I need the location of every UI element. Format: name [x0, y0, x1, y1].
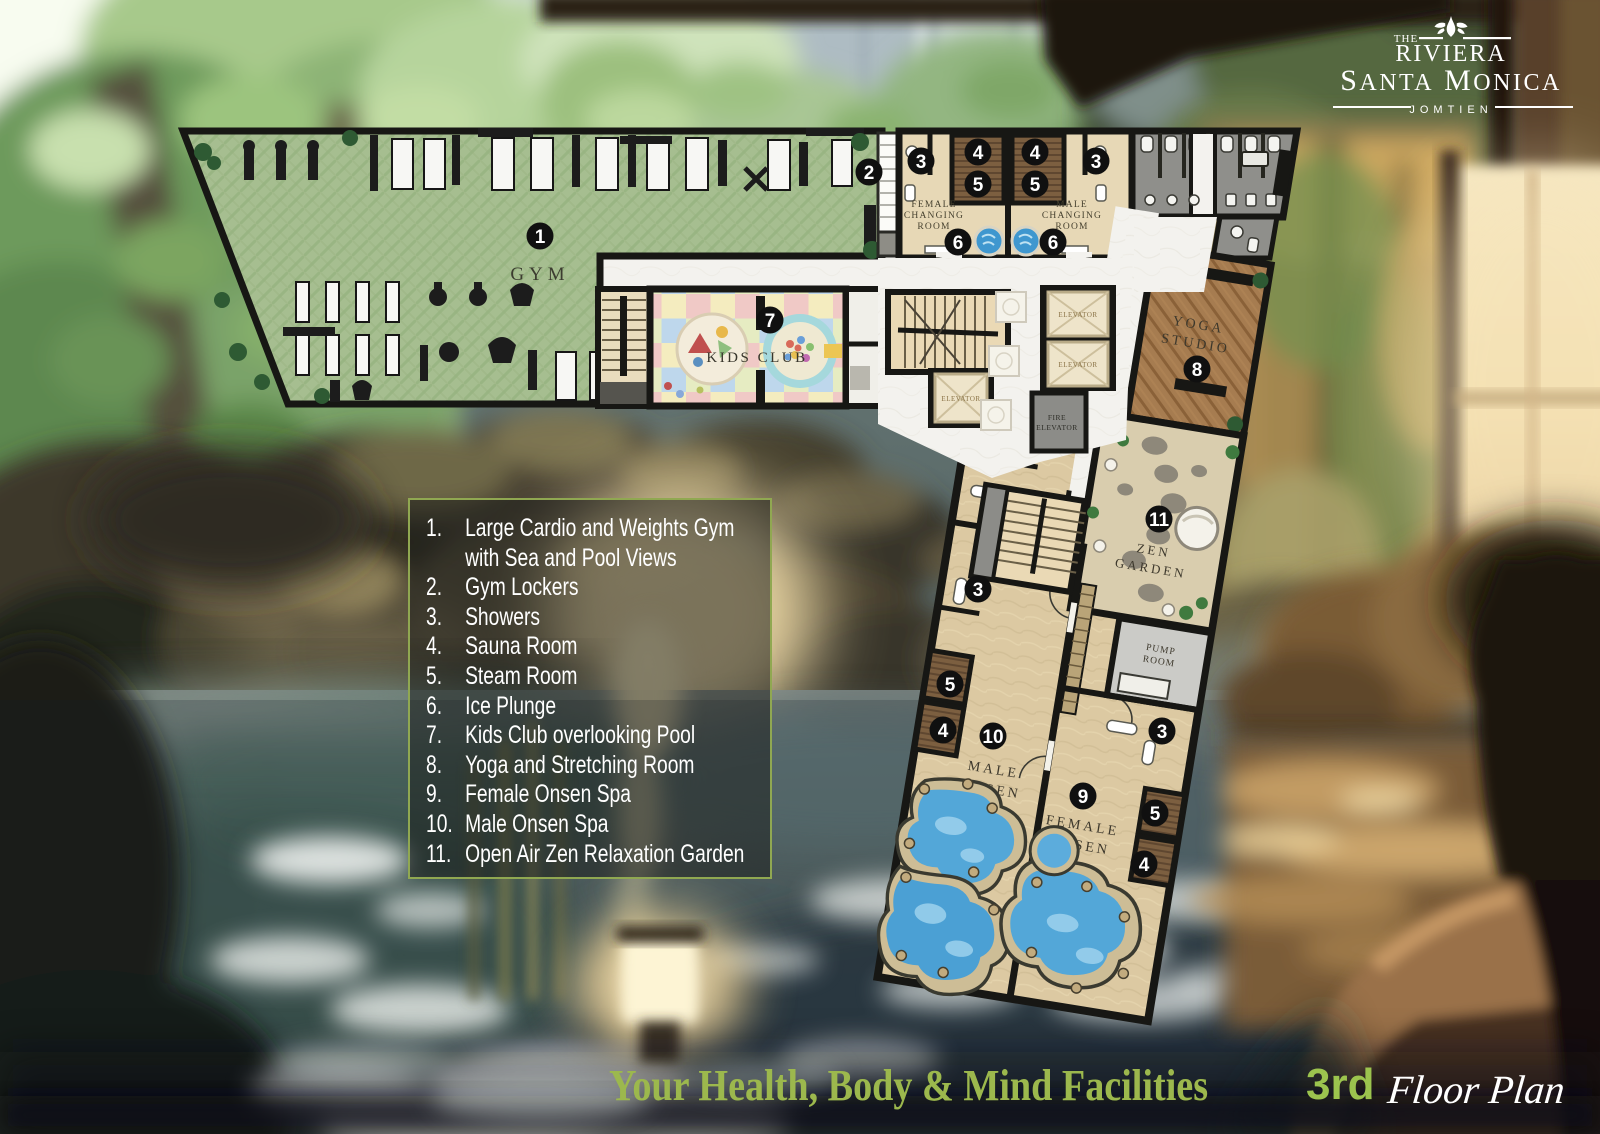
- svg-text:4: 4: [1139, 855, 1150, 876]
- svg-text:FIRE: FIRE: [1048, 413, 1066, 422]
- svg-text:2: 2: [864, 163, 875, 184]
- svg-text:CHANGING: CHANGING: [904, 211, 964, 221]
- svg-text:3: 3: [1157, 722, 1168, 743]
- svg-text:4: 4: [973, 143, 984, 164]
- svg-text:7: 7: [765, 311, 776, 332]
- svg-text:ROOM: ROOM: [1055, 222, 1088, 232]
- svg-text:5: 5: [973, 175, 984, 196]
- svg-text:ELEVATOR: ELEVATOR: [941, 395, 980, 403]
- svg-text:ELEVATOR: ELEVATOR: [1058, 361, 1097, 369]
- svg-text:5: 5: [1150, 804, 1161, 825]
- svg-text:3: 3: [973, 580, 984, 601]
- svg-text:ELEVATOR: ELEVATOR: [1036, 423, 1078, 432]
- svg-text:JOMTIEN: JOMTIEN: [1409, 104, 1492, 114]
- svg-text:4: 4: [1030, 143, 1041, 164]
- svg-text:SANTA MONICA: SANTA MONICA: [1340, 64, 1562, 97]
- svg-text:6: 6: [953, 233, 964, 254]
- svg-text:9: 9: [1078, 787, 1089, 808]
- svg-text:4: 4: [938, 721, 949, 742]
- svg-text:CHANGING: CHANGING: [1042, 211, 1102, 221]
- svg-text:KIDS CLUB: KIDS CLUB: [706, 350, 807, 366]
- svg-text:GYM: GYM: [510, 264, 569, 285]
- svg-text:5: 5: [1030, 175, 1041, 196]
- svg-text:11: 11: [1149, 510, 1170, 531]
- svg-text:5: 5: [945, 675, 956, 696]
- svg-text:10: 10: [982, 727, 1003, 748]
- svg-text:3: 3: [916, 152, 927, 173]
- svg-text:6: 6: [1048, 233, 1059, 254]
- svg-text:MALE: MALE: [1056, 200, 1088, 210]
- svg-text:3: 3: [1091, 152, 1102, 173]
- svg-text:8: 8: [1192, 360, 1203, 381]
- svg-text:1: 1: [535, 227, 546, 248]
- svg-text:FEMALE: FEMALE: [911, 200, 956, 210]
- svg-text:ROOM: ROOM: [917, 222, 950, 232]
- svg-text:ELEVATOR: ELEVATOR: [1058, 311, 1097, 319]
